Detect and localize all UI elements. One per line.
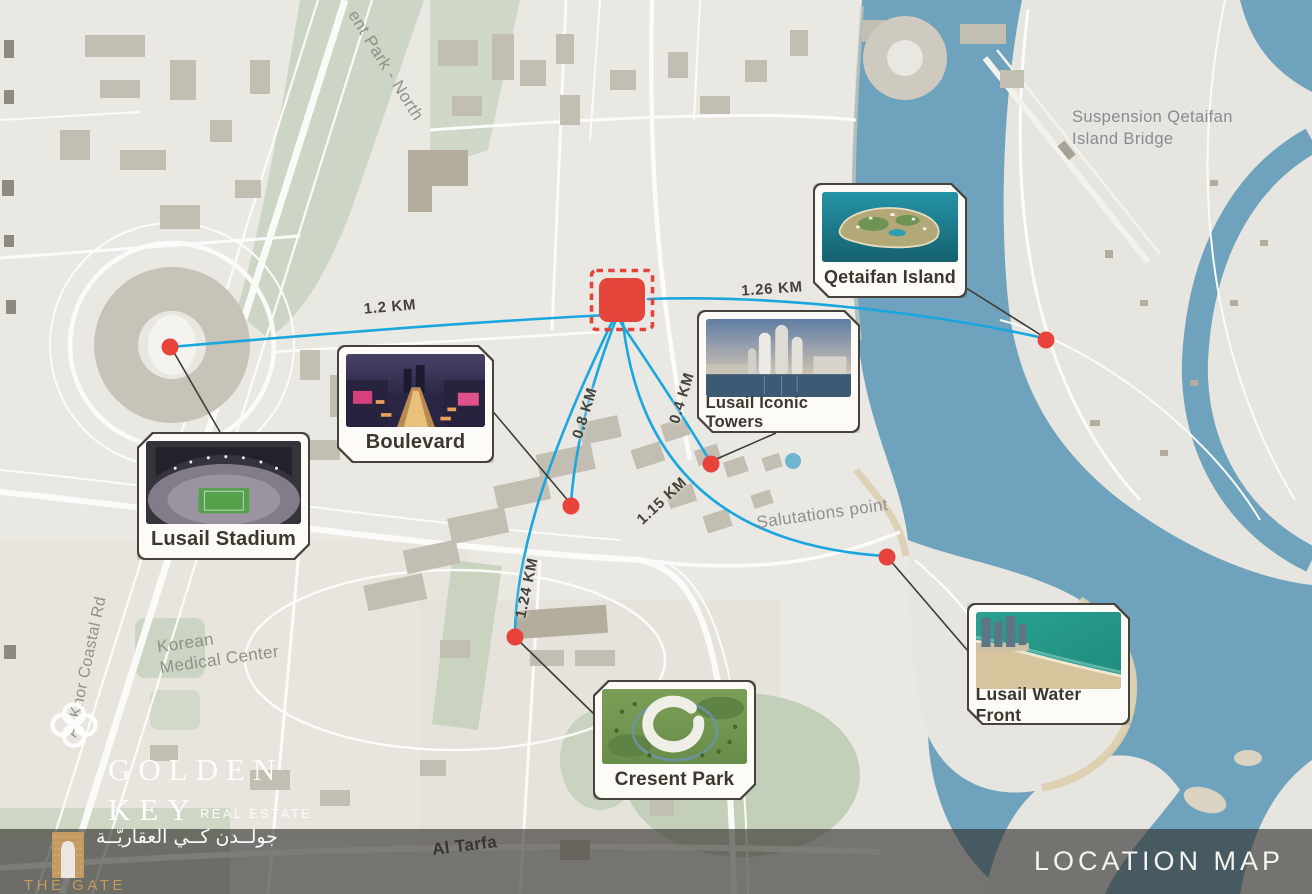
map-pin-lusail-stadium[interactable] (162, 339, 179, 356)
location-card-lusail-stadium[interactable]: Lusail Stadium (137, 432, 310, 560)
location-card-qetaifan-island[interactable]: Qetaifan Island (813, 183, 967, 298)
connector-lusail-water-front (889, 559, 968, 651)
lusail-iconic-towers-photo (706, 319, 852, 398)
boulevard-photo (346, 354, 486, 428)
connector-boulevard (490, 408, 570, 503)
card-label-lusail-water-front: Lusail Water Front (976, 689, 1122, 720)
location-card-cresent-park[interactable]: Cresent Park (593, 680, 756, 800)
cresent-park-photo (602, 689, 748, 765)
card-label-lusail-stadium: Lusail Stadium (146, 524, 302, 555)
connector-lusail-iconic-towers (712, 433, 776, 461)
brand-key: KEY (108, 792, 199, 828)
the-gate-logo-text: THE GATE (24, 877, 126, 894)
route-line-lusail-iconic-towers (621, 323, 710, 461)
location-map-title: LOCATION MAP (1034, 846, 1312, 877)
card-label-lusail-iconic-towers: Lusail Iconic Towers (706, 397, 852, 428)
the-gate-logo-icon (52, 832, 84, 878)
brand-arabic-name: جولــدن كــي العقاريّــة (96, 826, 278, 848)
location-map-page: ent Park - North Suspension Qetaifan Isl… (0, 0, 1312, 894)
qetaifan-island-photo (822, 192, 959, 263)
location-card-boulevard[interactable]: Boulevard (337, 345, 494, 463)
card-label-cresent-park: Cresent Park (602, 764, 748, 795)
location-card-lusail-water-front[interactable]: Lusail Water Front (967, 603, 1130, 725)
lusail-stadium-photo (146, 441, 302, 525)
map-pin-lusail-iconic-towers[interactable] (703, 456, 720, 473)
map-pin-boulevard[interactable] (563, 498, 580, 515)
golden-key-flower-icon (47, 701, 101, 749)
route-line-lusail-stadium (170, 315, 607, 347)
project-site-marker[interactable] (592, 271, 653, 330)
map-pin-lusail-water-front[interactable] (879, 549, 896, 566)
connector-cresent-park (517, 639, 595, 715)
card-label-qetaifan-island: Qetaifan Island (822, 262, 959, 293)
location-card-lusail-iconic-towers[interactable]: Lusail Iconic Towers (697, 310, 860, 433)
map-pin-qetaifan-island[interactable] (1038, 332, 1055, 349)
lusail-water-front-photo (976, 612, 1122, 690)
card-label-boulevard: Boulevard (346, 427, 486, 458)
brand-golden: GOLDEN (108, 752, 283, 788)
brand-real-estate: REAL ESTATE (200, 806, 312, 821)
map-label-bridge: Suspension Qetaifan Island Bridge (1072, 106, 1233, 150)
map-pin-cresent-park[interactable] (507, 629, 524, 646)
connector-lusail-stadium (172, 349, 220, 432)
